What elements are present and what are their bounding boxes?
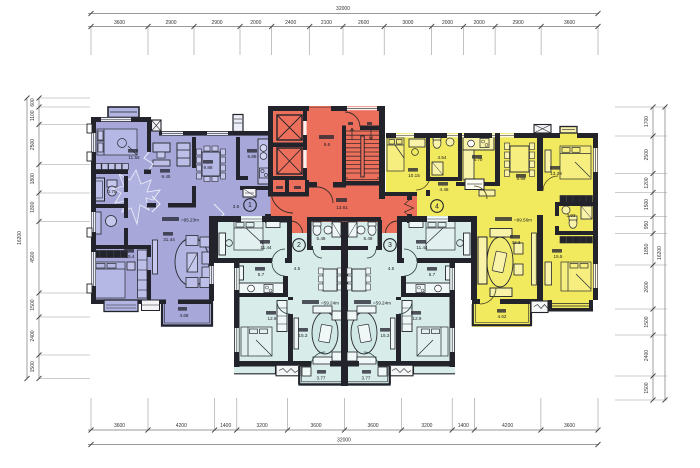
svg-text:1400: 1400	[220, 423, 231, 429]
svg-text:4500: 4500	[30, 251, 36, 262]
svg-text:3600: 3600	[367, 423, 378, 429]
svg-text:10.15: 10.15	[408, 173, 420, 178]
svg-text:950: 950	[644, 221, 650, 230]
svg-text:32.3: 32.3	[512, 240, 521, 245]
svg-text:1800: 1800	[30, 173, 36, 184]
svg-text:4.62: 4.62	[498, 314, 507, 319]
svg-text:3.75: 3.75	[108, 189, 117, 194]
svg-text:5.48: 5.48	[317, 236, 326, 241]
svg-text:12.9: 12.9	[413, 316, 422, 321]
svg-text:15.3: 15.3	[299, 333, 308, 338]
svg-text:1700: 1700	[644, 116, 650, 127]
svg-text:2900: 2900	[165, 20, 176, 26]
svg-text:4.5: 4.5	[294, 266, 301, 271]
svg-text:3200: 3200	[421, 423, 432, 429]
svg-text:1850: 1850	[644, 243, 650, 254]
svg-text:13.61: 13.61	[336, 205, 348, 210]
svg-text:600: 600	[30, 98, 36, 107]
svg-text:3600: 3600	[564, 20, 575, 26]
svg-text:1800: 1800	[30, 201, 36, 212]
svg-text:15.5: 15.5	[554, 254, 563, 259]
svg-text:9.99: 9.99	[517, 176, 526, 181]
svg-text:2900: 2900	[513, 20, 524, 26]
svg-text:3.93: 3.93	[567, 213, 576, 218]
svg-text:3000: 3000	[402, 20, 413, 26]
svg-text:2000: 2000	[474, 20, 485, 26]
svg-text:2900: 2900	[211, 20, 222, 26]
svg-text:13.39: 13.39	[550, 171, 562, 176]
svg-text:=59.24m: =59.24m	[373, 301, 391, 306]
svg-text:5.70: 5.70	[474, 157, 483, 162]
svg-text:3600: 3600	[114, 20, 125, 26]
svg-text:1400: 1400	[458, 423, 469, 429]
svg-text:4: 4	[435, 204, 439, 211]
svg-text:1500: 1500	[644, 316, 650, 327]
svg-text:1500: 1500	[644, 382, 650, 393]
svg-text:1500: 1500	[30, 361, 36, 372]
svg-text:=99.56m: =99.56m	[514, 218, 532, 223]
svg-text:4.68: 4.68	[180, 313, 189, 318]
svg-text:1500: 1500	[644, 199, 650, 210]
svg-text:3.6: 3.6	[233, 204, 240, 209]
svg-text:31.44: 31.44	[163, 237, 175, 242]
svg-text:15.3: 15.3	[381, 333, 390, 338]
svg-text:4200: 4200	[502, 423, 513, 429]
svg-text:2000: 2000	[442, 20, 453, 26]
svg-text:5.7: 5.7	[429, 272, 436, 277]
svg-text:2400: 2400	[30, 330, 36, 341]
svg-text:4200: 4200	[176, 423, 187, 429]
svg-text:2100: 2100	[321, 20, 332, 26]
svg-text:2400: 2400	[644, 350, 650, 361]
svg-text:4.48: 4.48	[440, 187, 449, 192]
svg-text:1100: 1100	[30, 110, 36, 121]
svg-text:2: 2	[297, 242, 301, 249]
svg-text:4.5: 4.5	[388, 266, 395, 271]
svg-text:3200: 3200	[257, 423, 268, 429]
svg-text:=95.23m: =95.23m	[181, 218, 199, 223]
svg-text:11.56: 11.56	[128, 155, 140, 160]
svg-text:11.44: 11.44	[260, 245, 272, 250]
svg-text:3600: 3600	[114, 423, 125, 429]
svg-text:2000: 2000	[250, 20, 261, 26]
svg-text:4.54: 4.54	[438, 155, 447, 160]
svg-text:3600: 3600	[564, 423, 575, 429]
svg-text:2500: 2500	[30, 139, 36, 150]
svg-text:3.77: 3.77	[362, 376, 371, 381]
svg-text:9.88: 9.88	[204, 165, 213, 170]
svg-text:3: 3	[388, 242, 392, 249]
svg-text:3.77: 3.77	[317, 376, 326, 381]
svg-text:5.7: 5.7	[258, 272, 265, 277]
svg-text:5.48: 5.48	[364, 236, 373, 241]
svg-text:=59.24m: =59.24m	[321, 301, 339, 306]
svg-text:16200: 16200	[657, 246, 663, 260]
svg-text:3600: 3600	[310, 423, 321, 429]
svg-text:32000: 32000	[337, 438, 351, 444]
svg-text:2600: 2600	[358, 20, 369, 26]
svg-text:1500: 1500	[30, 299, 36, 310]
svg-text:2600: 2600	[644, 281, 650, 292]
svg-text:12.9: 12.9	[268, 316, 277, 321]
svg-text:2400: 2400	[285, 20, 296, 26]
svg-text:32000: 32000	[336, 6, 350, 12]
svg-text:9.6: 9.6	[324, 142, 331, 147]
svg-text:11.44: 11.44	[416, 245, 428, 250]
svg-text:9.45: 9.45	[162, 174, 171, 179]
svg-text:5.89: 5.89	[248, 154, 257, 159]
svg-text:1: 1	[248, 202, 252, 209]
svg-text:16200: 16200	[17, 231, 23, 245]
svg-text:15.4: 15.4	[126, 254, 135, 259]
svg-text:2500: 2500	[644, 149, 650, 160]
svg-text:1200: 1200	[644, 177, 650, 188]
